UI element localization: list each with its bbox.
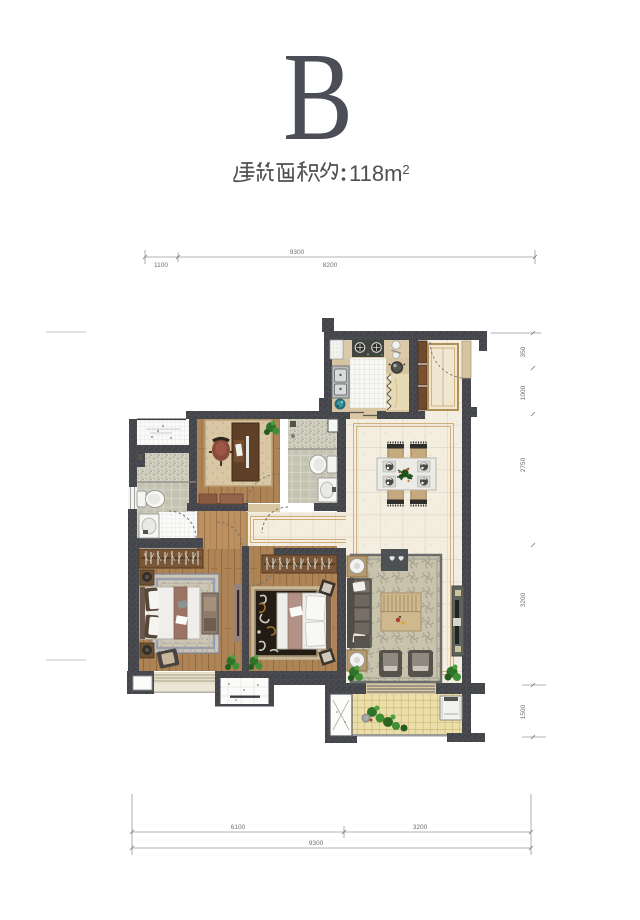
- svg-text:350: 350: [520, 346, 527, 357]
- svg-text:3200: 3200: [520, 592, 527, 607]
- svg-text:1100: 1100: [154, 262, 168, 269]
- svg-text:1000: 1000: [520, 385, 527, 400]
- svg-text:3200: 3200: [413, 824, 428, 831]
- svg-text:B: B: [283, 28, 353, 167]
- svg-text:1500: 1500: [520, 704, 527, 719]
- svg-text:118m2: 118m2: [349, 161, 410, 186]
- svg-text:6100: 6100: [231, 824, 246, 831]
- svg-text:9300: 9300: [290, 249, 305, 256]
- svg-text:2750: 2750: [520, 457, 527, 472]
- svg-text:8200: 8200: [323, 262, 338, 269]
- svg-text:9300: 9300: [309, 840, 324, 847]
